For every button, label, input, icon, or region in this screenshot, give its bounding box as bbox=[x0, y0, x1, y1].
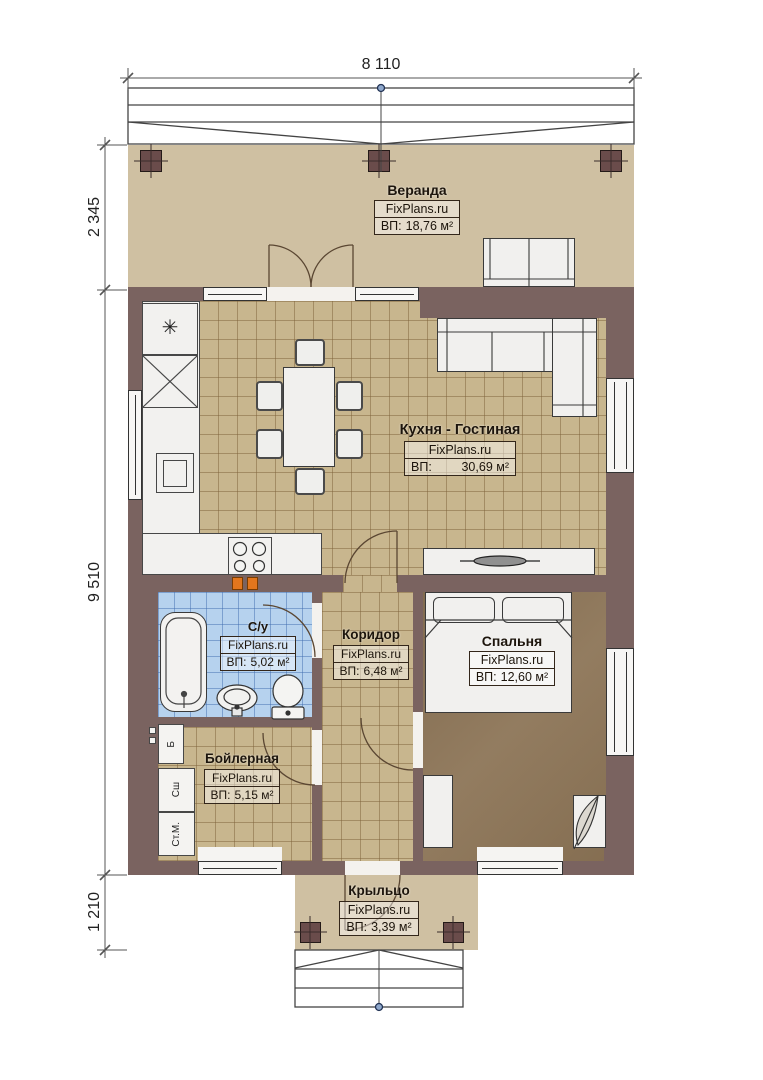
dim-width-top: 8 110 bbox=[341, 56, 421, 74]
bedroom-wardrobe bbox=[423, 775, 453, 848]
wall-mid-horizontal-right bbox=[397, 575, 634, 592]
wall-corridor-right-b bbox=[413, 768, 423, 861]
area-value: 30,69 м² bbox=[461, 460, 509, 474]
brand-badge: FixPlans.ru bbox=[340, 902, 417, 918]
dim-porch-depth: 1 210 bbox=[86, 877, 104, 947]
porch-info-box: FixPlans.ru ВП: 3,39 м² bbox=[339, 901, 418, 936]
window-boiler-bottom bbox=[198, 861, 282, 875]
entrance-door-opening bbox=[345, 861, 400, 875]
room-label-kitchen-living: Кухня - Гостиная FixPlans.ru ВП: 30,69 м… bbox=[395, 423, 525, 476]
room-label-bedroom: Спальня FixPlans.ru ВП: 12,60 м² bbox=[462, 634, 562, 686]
corridor-kitchen-opening-floor bbox=[343, 575, 397, 592]
bathroom-info-box: FixPlans.ru ВП: 5,02 м² bbox=[220, 636, 297, 671]
room-name-bathroom: С/у bbox=[248, 620, 268, 634]
area-row: ВП: 3,39 м² bbox=[340, 918, 417, 935]
room-name-bedroom: Спальня bbox=[482, 634, 542, 649]
area-prefix: ВП: bbox=[411, 460, 432, 474]
pier-bottom-left bbox=[128, 843, 158, 875]
room-label-boiler: Бойлерная FixPlans.ru ВП: 5,15 м² bbox=[194, 752, 290, 804]
window-niche-boiler bbox=[198, 847, 282, 861]
dining-chair-left-2 bbox=[256, 429, 283, 459]
panel-square-1 bbox=[149, 727, 156, 734]
area-row: ВП: 6,48 м² bbox=[334, 662, 409, 679]
dim-veranda-depth: 2 345 bbox=[86, 182, 104, 252]
brand-badge: FixPlans.ru bbox=[205, 770, 280, 786]
bathtub bbox=[160, 612, 207, 712]
stove-vent-left bbox=[232, 577, 243, 590]
window-living-right bbox=[606, 378, 634, 473]
veranda-post-left bbox=[140, 150, 162, 172]
porch-post-left bbox=[300, 922, 321, 943]
veranda-info-box: FixPlans.ru ВП: 18,76 м² bbox=[374, 200, 460, 235]
area-value: 12,60 м² bbox=[501, 670, 549, 684]
area-value: 5,02 м² bbox=[251, 655, 290, 669]
wall-corridor-left-a bbox=[312, 592, 322, 603]
dryer: Сш bbox=[158, 768, 195, 812]
stove bbox=[228, 537, 272, 575]
dining-chair-right-1 bbox=[336, 381, 363, 411]
wall-corridor-left-b bbox=[312, 658, 322, 730]
area-value: 5,15 м² bbox=[235, 788, 274, 802]
area-row: ВП: 30,69 м² bbox=[405, 458, 515, 475]
area-prefix: ВП: bbox=[340, 664, 360, 678]
brand-badge: FixPlans.ru bbox=[375, 201, 459, 217]
window-niche-bedroom bbox=[477, 847, 563, 861]
porch-post-right bbox=[443, 922, 464, 943]
window-kitchen-left bbox=[128, 390, 142, 500]
fridge-snowflake-icon: ✳ bbox=[143, 318, 197, 338]
wall-top-right-thick bbox=[420, 287, 634, 318]
dim-house-depth: 9 510 bbox=[86, 547, 104, 617]
area-prefix: ВП: bbox=[476, 670, 497, 684]
area-value: 18,76 м² bbox=[406, 219, 454, 233]
room-name-kitchen-living: Кухня - Гостиная bbox=[400, 423, 521, 439]
area-value: 3,39 м² bbox=[371, 920, 412, 934]
washing-machine-label: Ст.М. bbox=[171, 822, 182, 847]
bedroom-info-box: FixPlans.ru ВП: 12,60 м² bbox=[469, 651, 555, 686]
brand-badge: FixPlans.ru bbox=[470, 652, 554, 668]
window-bedroom-bottom bbox=[477, 861, 563, 875]
room-label-porch: Крыльцо FixPlans.ru ВП: 3,39 м² bbox=[332, 884, 426, 936]
dining-chair-left-1 bbox=[256, 381, 283, 411]
boiler-door-opening bbox=[312, 730, 322, 785]
window-bedroom-right bbox=[606, 648, 634, 756]
pier-bottom-right bbox=[604, 843, 634, 875]
veranda-post-center bbox=[368, 150, 390, 172]
area-prefix: ВП: bbox=[346, 920, 367, 934]
room-label-veranda: Веранда FixPlans.ru ВП: 18,76 м² bbox=[358, 183, 476, 235]
dining-chair-right-2 bbox=[336, 429, 363, 459]
brand-badge: FixPlans.ru bbox=[221, 637, 296, 653]
water-heater: Б bbox=[158, 724, 184, 764]
wall-corridor-left-c bbox=[312, 785, 322, 861]
corridor-info-box: FixPlans.ru ВП: 6,48 м² bbox=[333, 645, 410, 680]
area-prefix: ВП: bbox=[211, 788, 231, 802]
boiler-info-box: FixPlans.ru ВП: 5,15 м² bbox=[204, 769, 281, 804]
area-prefix: ВП: bbox=[227, 655, 247, 669]
dining-table bbox=[283, 367, 335, 467]
dining-chair-top bbox=[295, 339, 325, 366]
dryer-label: Сш bbox=[171, 782, 182, 797]
veranda-bench bbox=[483, 238, 575, 287]
stove-vent-right bbox=[247, 577, 258, 590]
area-row: ВП: 18,76 м² bbox=[375, 217, 459, 234]
area-prefix: ВП: bbox=[381, 219, 402, 233]
room-name-veranda: Веранда bbox=[387, 183, 446, 198]
sofa-vertical bbox=[552, 318, 597, 417]
area-value: 6,48 м² bbox=[364, 664, 403, 678]
panel-square-2 bbox=[149, 737, 156, 744]
room-label-corridor: Коридор FixPlans.ru ВП: 6,48 м² bbox=[326, 628, 416, 680]
kitchen-sink bbox=[156, 453, 194, 493]
porch-steps bbox=[295, 950, 463, 1011]
dining-chair-bottom bbox=[295, 468, 325, 495]
room-name-corridor: Коридор bbox=[342, 628, 400, 643]
water-heater-label: Б bbox=[166, 741, 177, 748]
bathroom-door-opening bbox=[312, 603, 322, 658]
room-name-porch: Крыльцо bbox=[348, 884, 409, 899]
area-row: ВП: 5,15 м² bbox=[205, 786, 280, 803]
veranda-post-right bbox=[600, 150, 622, 172]
veranda-french-door-opening bbox=[265, 287, 357, 301]
room-label-bathroom: С/у FixPlans.ru ВП: 5,02 м² bbox=[210, 620, 306, 671]
room-name-boiler: Бойлерная bbox=[205, 752, 279, 767]
window-kitchen-top-2 bbox=[355, 287, 419, 301]
pillow-right bbox=[502, 597, 564, 623]
kitchen-info-box: FixPlans.ru ВП: 30,69 м² bbox=[404, 441, 516, 476]
brand-badge: FixPlans.ru bbox=[405, 442, 515, 458]
plant-stand bbox=[573, 795, 606, 848]
tv-console bbox=[423, 548, 595, 575]
brand-badge: FixPlans.ru bbox=[334, 646, 409, 662]
area-row: ВП: 12,60 м² bbox=[470, 668, 554, 685]
window-kitchen-top-1 bbox=[203, 287, 267, 301]
washing-machine: Ст.М. bbox=[158, 812, 195, 856]
pillow-left bbox=[433, 597, 495, 623]
fridge: ✳ bbox=[142, 303, 198, 355]
bedroom-door-opening bbox=[413, 712, 423, 768]
kitchen-cabinet-x bbox=[142, 355, 198, 408]
area-row: ВП: 5,02 м² bbox=[221, 653, 296, 670]
floor-plan: ✳ Б Сш Ст.М. bbox=[0, 0, 763, 1080]
